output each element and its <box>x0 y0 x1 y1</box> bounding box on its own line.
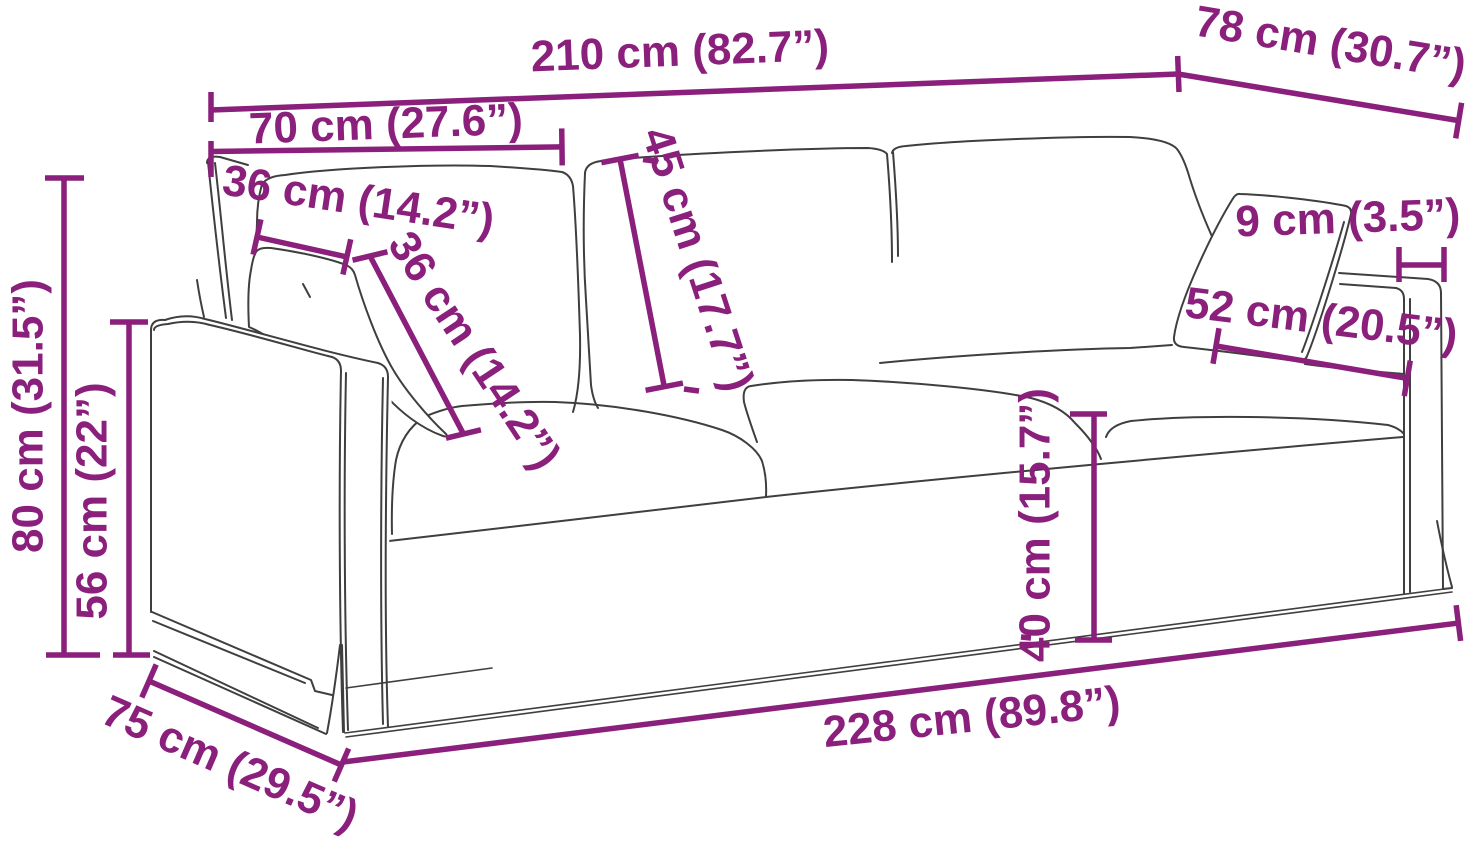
svg-text:80 cm (31.5”): 80 cm (31.5”) <box>4 279 53 553</box>
svg-text:56 cm (22”): 56 cm (22”) <box>68 382 117 619</box>
svg-text:70 cm (27.6”): 70 cm (27.6”) <box>248 95 524 154</box>
svg-text:40 cm (15.7”): 40 cm (15.7”) <box>1011 388 1060 662</box>
svg-text:9 cm (3.5”): 9 cm (3.5”) <box>1235 190 1462 247</box>
